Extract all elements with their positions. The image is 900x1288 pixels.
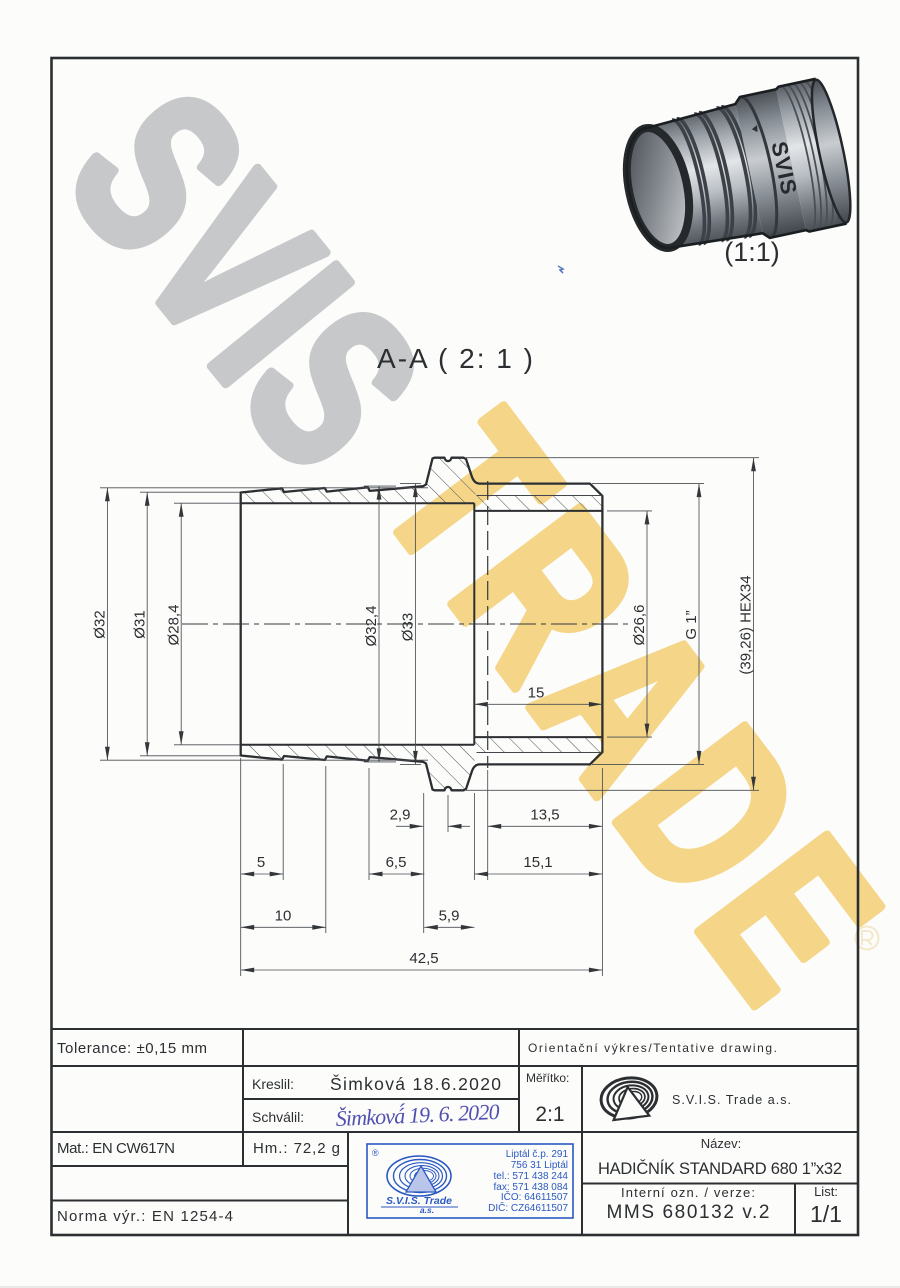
svg-text:42,5: 42,5 <box>409 950 438 967</box>
svg-text:2:1: 2:1 <box>535 1103 564 1126</box>
svg-text:Liptál č.p. 291: Liptál č.p. 291 <box>506 1149 569 1160</box>
svg-text:Kreslil:: Kreslil: <box>252 1076 294 1092</box>
svg-text:Hm.: 72,2 g: Hm.: 72,2 g <box>253 1140 340 1157</box>
svg-text:a.s.: a.s. <box>420 1205 434 1215</box>
svg-text:Mat.: EN CW617N: Mat.: EN CW617N <box>57 1140 175 1157</box>
svg-text:15: 15 <box>528 685 545 702</box>
svg-text:Název:: Název: <box>701 1136 741 1151</box>
svg-text:Tolerance: ±0,15 mm: Tolerance: ±0,15 mm <box>57 1040 207 1057</box>
svg-text:13,5: 13,5 <box>530 807 559 824</box>
svg-text:MMS 680132 v.2: MMS 680132 v.2 <box>607 1202 770 1223</box>
svg-text:Ø28,4: Ø28,4 <box>166 605 183 646</box>
svg-text:1/1: 1/1 <box>810 1201 842 1227</box>
svg-text:(39,26) HEX34: (39,26) HEX34 <box>738 575 755 674</box>
svg-text:Ø26,6: Ø26,6 <box>631 605 648 646</box>
svg-text:15,1: 15,1 <box>523 854 552 871</box>
svg-text:Ø31: Ø31 <box>132 610 149 638</box>
svg-text:756 31 Liptál: 756 31 Liptál <box>511 1160 568 1171</box>
svg-text:tel.: 571 438 244: tel.: 571 438 244 <box>493 1171 568 1182</box>
svg-text:A-A ( 2: 1 ): A-A ( 2: 1 ) <box>377 343 533 374</box>
svg-text:HADIČNÍK STANDARD 680 1”x32: HADIČNÍK STANDARD 680 1”x32 <box>598 1159 842 1178</box>
svg-text:List:: List: <box>814 1184 838 1199</box>
svg-text:6,5: 6,5 <box>386 854 407 871</box>
svg-text:Šimková 18.6.2020: Šimková 18.6.2020 <box>330 1073 501 1094</box>
svg-text:DIČ: CZ64611507: DIČ: CZ64611507 <box>488 1201 568 1214</box>
svg-text:S.V.I.S. Trade a.s.: S.V.I.S. Trade a.s. <box>672 1093 791 1107</box>
svg-text:IČO: 64611507: IČO: 64611507 <box>501 1190 569 1203</box>
svg-text:5,9: 5,9 <box>439 907 460 924</box>
svg-text:Ø33: Ø33 <box>400 613 417 641</box>
svg-text:Měřítko:: Měřítko: <box>526 1071 569 1085</box>
svg-text:®: ® <box>372 1148 379 1158</box>
svg-text:5: 5 <box>257 854 265 871</box>
svg-text:2,9: 2,9 <box>390 807 411 824</box>
svg-text:G 1”: G 1” <box>683 610 700 639</box>
svg-text:Orientační výkres/Tentative dr: Orientační výkres/Tentative drawing. <box>528 1041 777 1055</box>
svg-text:Ø32: Ø32 <box>92 610 109 638</box>
svg-text:10: 10 <box>275 907 292 924</box>
svg-text:Interní ozn. / verze:: Interní ozn. / verze: <box>621 1185 755 1200</box>
svg-text:(1:1): (1:1) <box>724 237 780 267</box>
svg-text:Norma výr.: EN 1254-4: Norma výr.: EN 1254-4 <box>57 1208 233 1225</box>
svg-text:Schválil:: Schválil: <box>252 1109 304 1125</box>
svg-text:Ø32,4: Ø32,4 <box>363 606 380 647</box>
